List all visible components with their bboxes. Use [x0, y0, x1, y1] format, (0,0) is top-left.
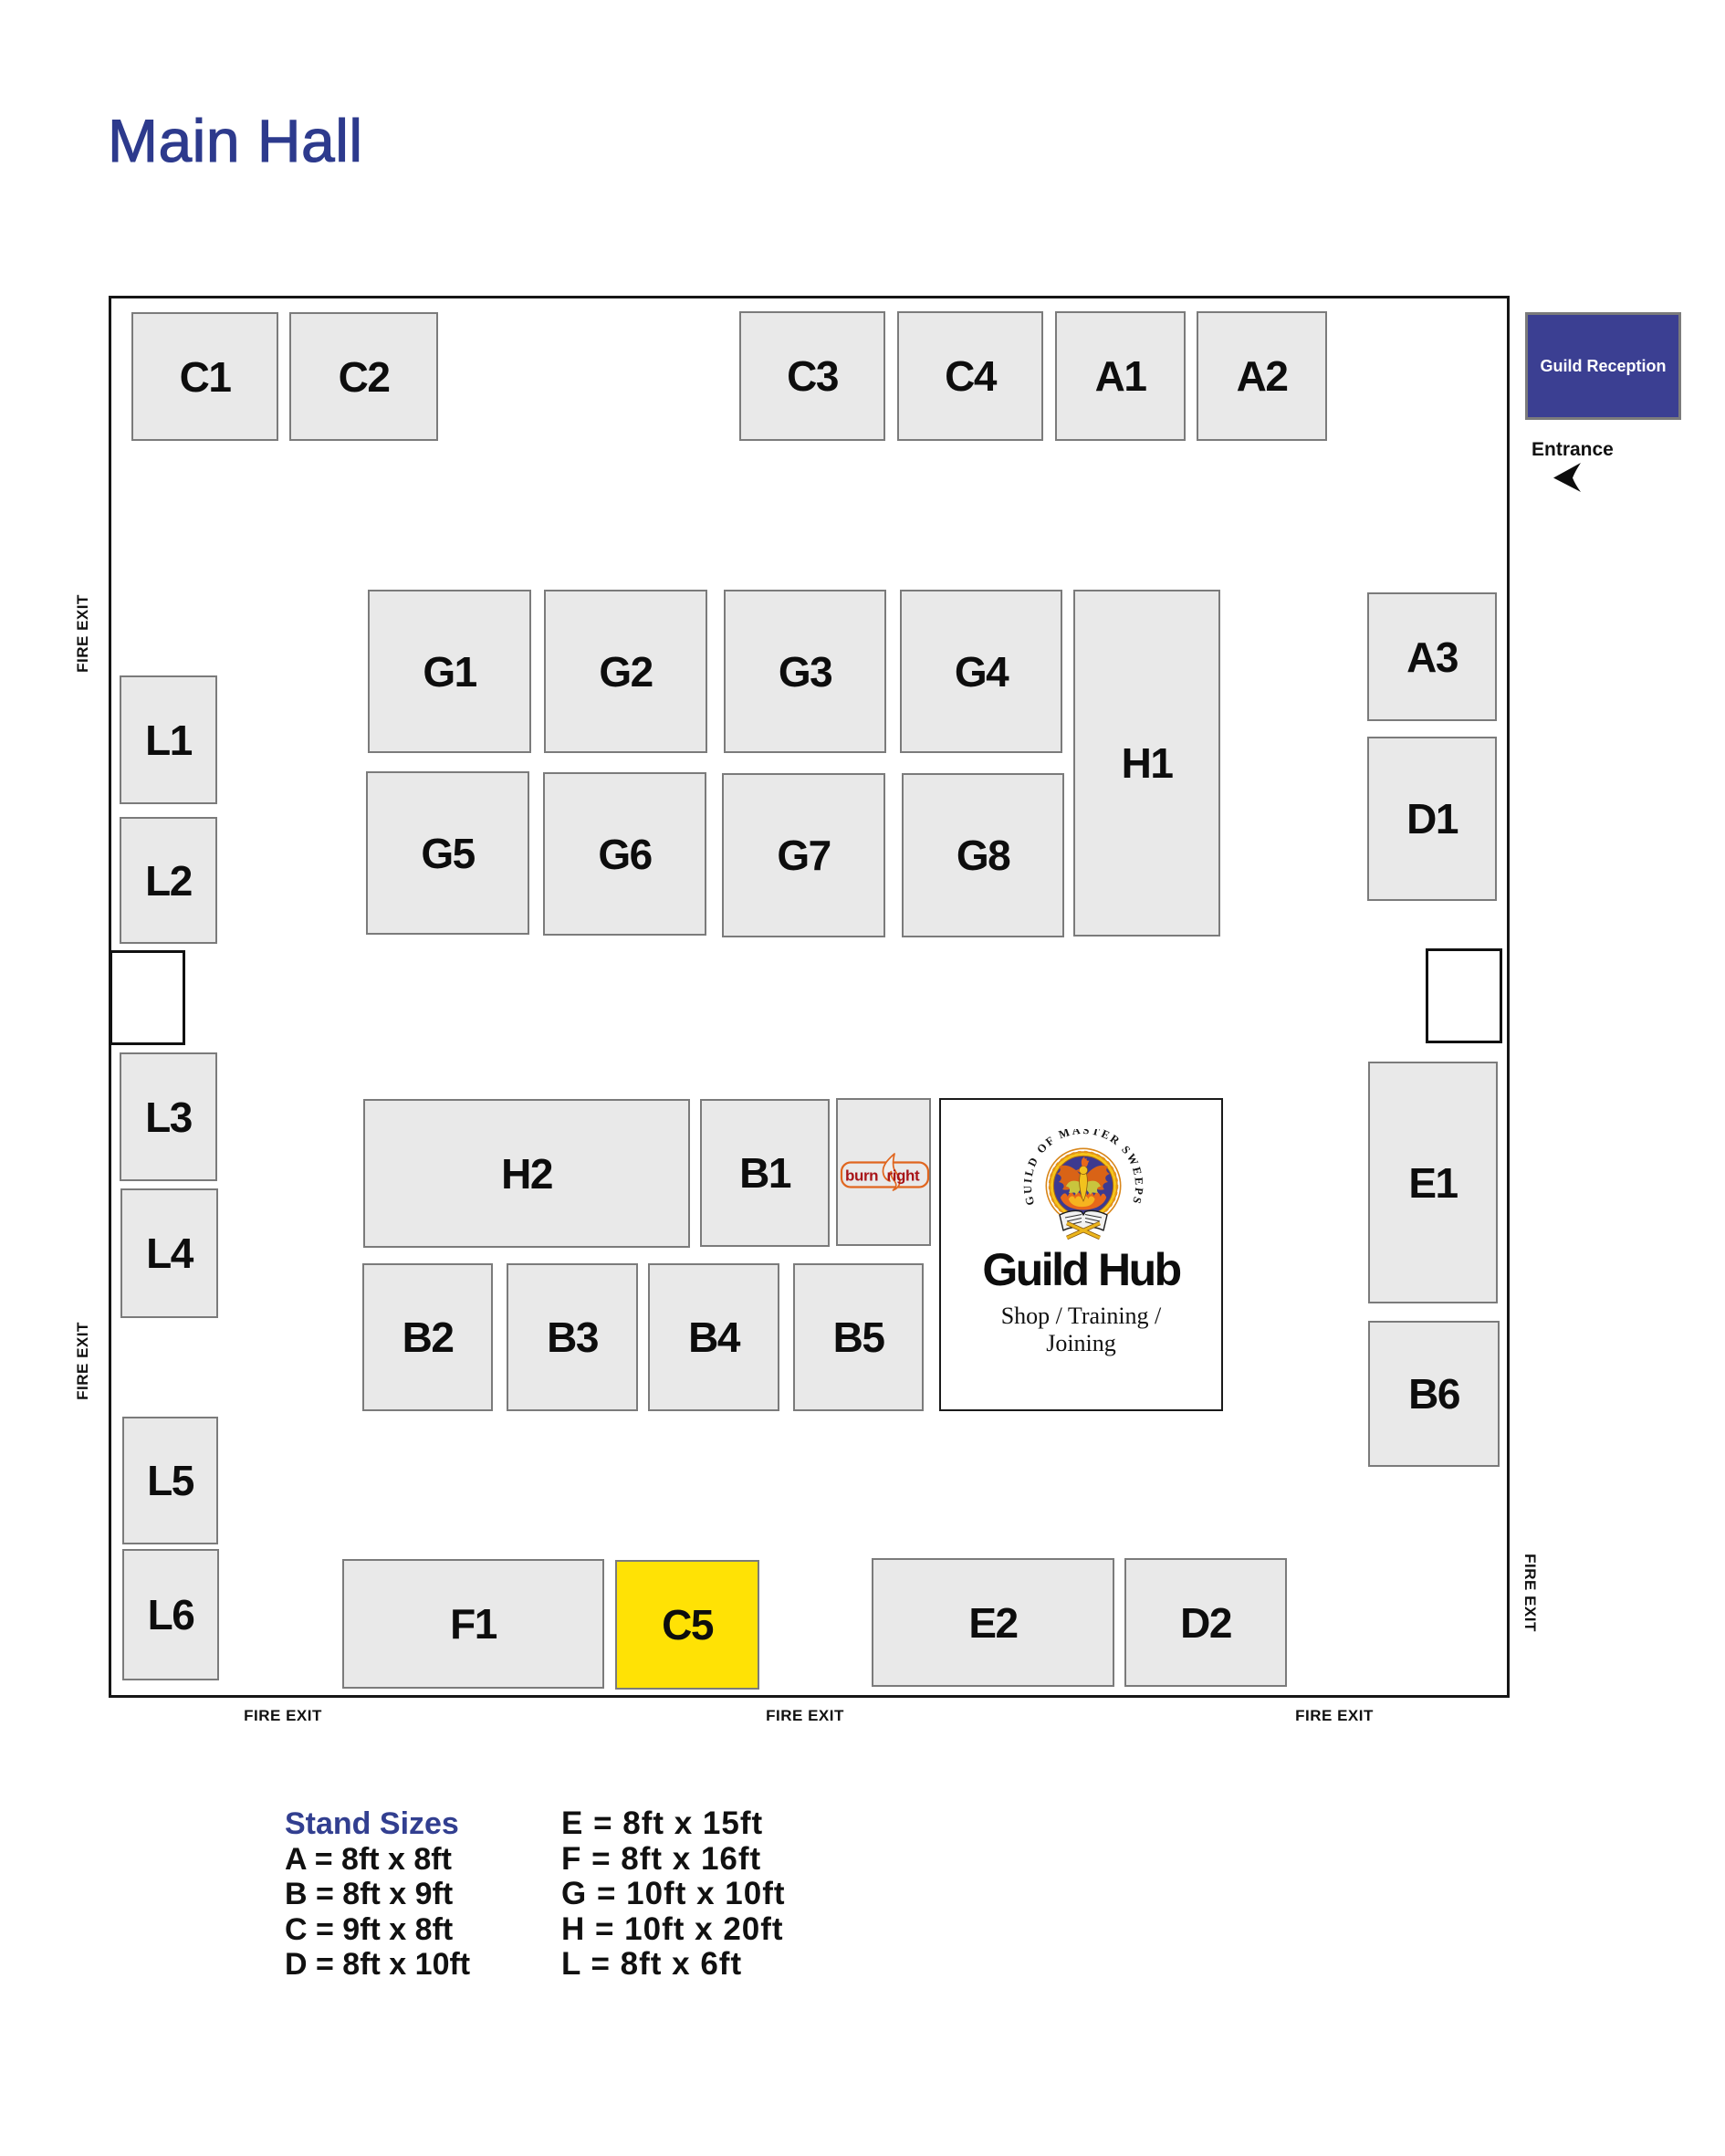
- svg-text:right: right: [887, 1167, 921, 1185]
- svg-text:burn: burn: [845, 1167, 878, 1185]
